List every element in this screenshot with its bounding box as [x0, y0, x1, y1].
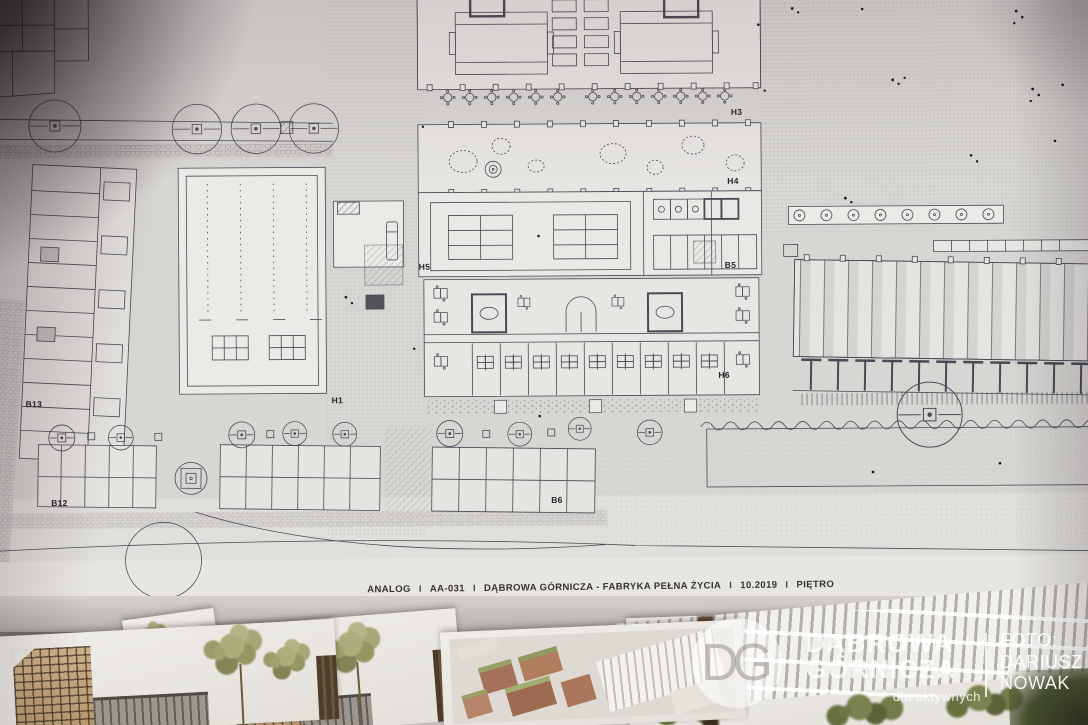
aerial-masterplan [449, 627, 736, 724]
grid-label-b13: B13 [26, 399, 43, 409]
grid-label-b12: B12 [51, 498, 68, 508]
grid-label-b5: B5 [725, 260, 737, 270]
apartment-row [38, 443, 596, 513]
building-hall-h1 [178, 167, 326, 394]
grid-label-b6: B6 [551, 495, 563, 505]
tree-trunk [239, 664, 244, 724]
office-band [424, 278, 760, 397]
context-block-render [457, 637, 499, 662]
interior-greenery [959, 696, 971, 708]
grid-label-h3: H3 [731, 107, 743, 117]
caption-sheet-number: AA-031 [430, 583, 465, 594]
caption-studio: ANALOG [367, 584, 411, 595]
winter-garden-band [418, 120, 761, 196]
dark-foliage-corner [1008, 668, 1088, 725]
print-tower-render-front [0, 619, 339, 725]
print-aerial-render [440, 619, 746, 725]
low-building-render [93, 692, 210, 725]
tower-render [12, 646, 94, 725]
caption-drawing-title: PIĘTRO [796, 579, 834, 590]
grid-label-h1: H1 [332, 395, 344, 405]
floor-plan-drawing [0, 0, 1088, 621]
tree-render [270, 657, 281, 668]
classroom-band [418, 191, 762, 277]
grid-label-h4: H4 [727, 176, 739, 186]
caption-separator: I [419, 584, 422, 595]
photo-of-floor-plan: H3 H4 B5 H5 H6 H1 B13 B12 B6 ANALOGIAA-0… [0, 0, 1088, 725]
brick-building-render [561, 674, 597, 707]
caption-separator: I [473, 583, 476, 594]
renderings-strip [0, 606, 1088, 725]
plan-sheet: H3 H4 B5 H5 H6 H1 B13 B12 B6 ANALOGIAA-0… [0, 0, 1088, 621]
brick-building-render [518, 646, 563, 681]
caption-separator: I [729, 580, 732, 591]
building-left-wing [19, 165, 136, 463]
fence-render [316, 655, 339, 720]
caption-date: 10.2019 [740, 580, 777, 591]
tree-render [212, 647, 226, 661]
caption-separator: I [785, 580, 788, 591]
grid-label-h5: H5 [419, 262, 431, 272]
grid-label-h6: H6 [718, 370, 730, 380]
interior-greenery [839, 706, 851, 718]
